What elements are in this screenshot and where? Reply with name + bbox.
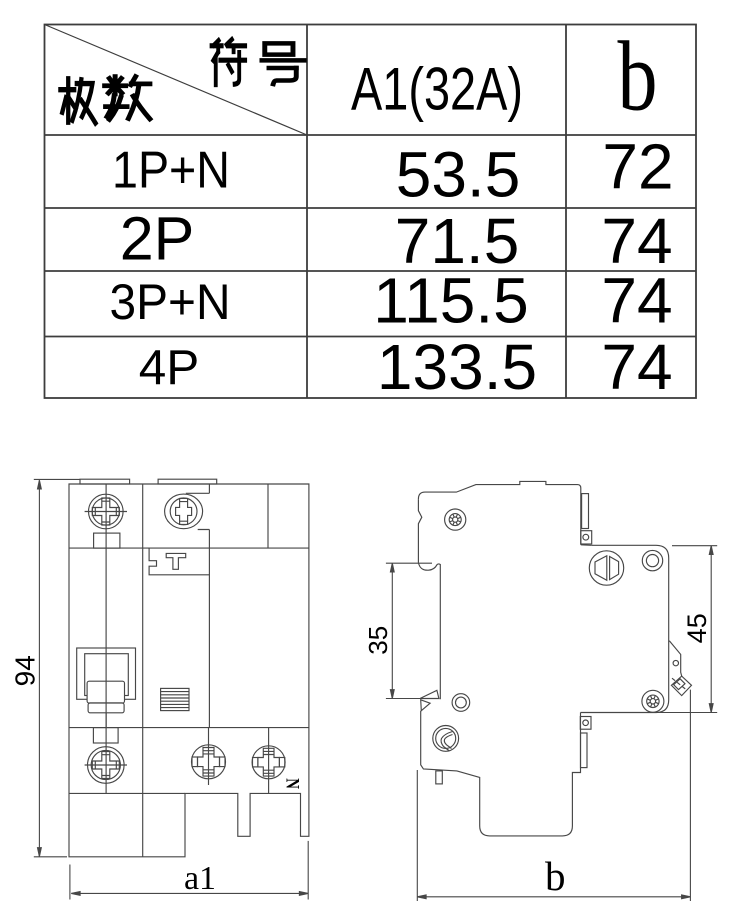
svg-text:3P+N: 3P+N bbox=[110, 274, 231, 330]
svg-text:b: b bbox=[545, 853, 566, 899]
svg-text:b: b bbox=[617, 20, 657, 132]
svg-text:74: 74 bbox=[601, 265, 672, 337]
svg-text:4P: 4P bbox=[139, 340, 200, 395]
svg-text:133.5: 133.5 bbox=[377, 331, 537, 403]
svg-text:115.5: 115.5 bbox=[373, 265, 528, 337]
svg-text:94: 94 bbox=[10, 655, 41, 686]
svg-text:a1: a1 bbox=[184, 860, 216, 897]
svg-text:72: 72 bbox=[602, 130, 673, 202]
svg-text:35: 35 bbox=[363, 626, 393, 655]
svg-text:53.5: 53.5 bbox=[396, 138, 521, 210]
svg-text:A1(32A): A1(32A) bbox=[351, 56, 523, 123]
svg-text:45: 45 bbox=[682, 613, 712, 643]
svg-text:1P+N: 1P+N bbox=[112, 142, 230, 200]
svg-text:N: N bbox=[282, 778, 303, 789]
svg-text:74: 74 bbox=[601, 331, 672, 403]
svg-text:2P: 2P bbox=[120, 205, 195, 273]
